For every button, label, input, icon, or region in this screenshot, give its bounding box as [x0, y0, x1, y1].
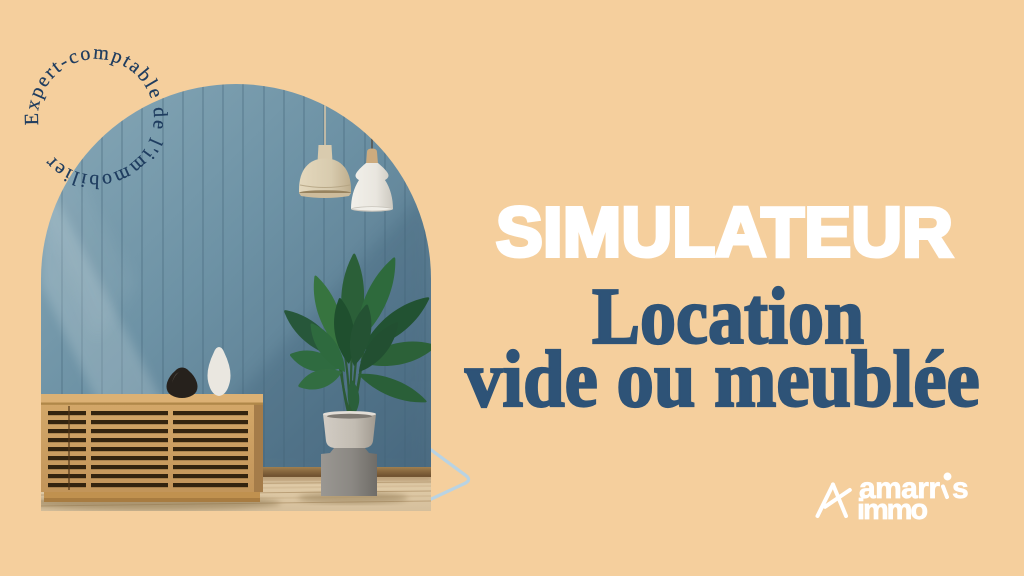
svg-text:s: s [952, 472, 969, 505]
svg-text:immo: immo [857, 494, 927, 526]
svg-text:Expert-comptable de l'immobili: Expert-comptable de l'immobilier [21, 41, 171, 192]
